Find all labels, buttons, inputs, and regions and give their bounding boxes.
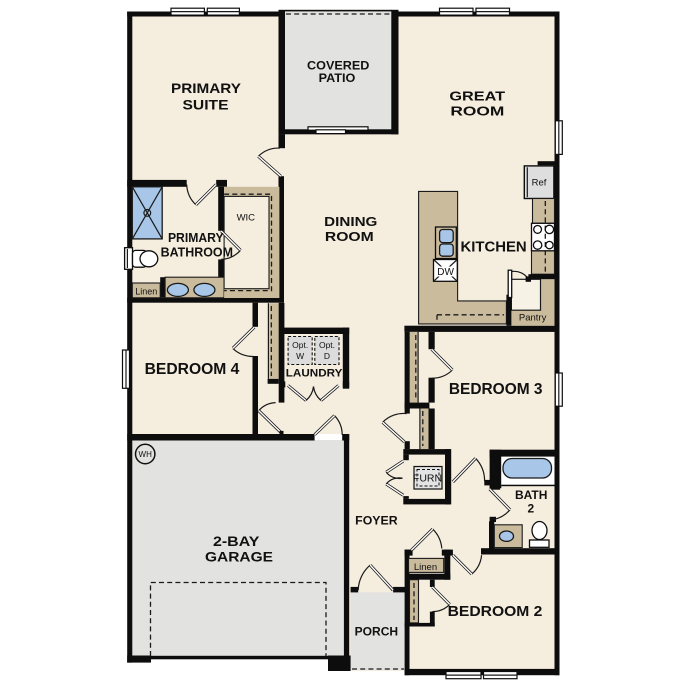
svg-text:WH: WH: [139, 450, 153, 459]
svg-text:LAUNDRY: LAUNDRY: [286, 368, 343, 380]
svg-text:GREAT: GREAT: [449, 88, 505, 103]
svg-text:ROOM: ROOM: [450, 104, 504, 119]
svg-text:2-BAY: 2-BAY: [213, 534, 259, 549]
svg-text:FOYER: FOYER: [355, 513, 398, 527]
svg-text:W: W: [296, 351, 304, 361]
svg-text:PRIMARY: PRIMARY: [168, 230, 224, 245]
svg-text:DW: DW: [437, 267, 454, 278]
svg-text:ROOM: ROOM: [325, 229, 374, 244]
svg-text:Opt.: Opt.: [319, 340, 335, 350]
svg-text:WIC: WIC: [237, 213, 256, 224]
svg-text:DINING: DINING: [324, 214, 377, 229]
svg-text:BEDROOM 2: BEDROOM 2: [448, 603, 543, 620]
svg-text:PORCH: PORCH: [355, 626, 399, 639]
svg-text:PRIMARY: PRIMARY: [171, 80, 242, 96]
svg-text:Linen: Linen: [135, 286, 157, 296]
svg-text:KITCHEN: KITCHEN: [461, 239, 527, 255]
svg-text:SUITE: SUITE: [183, 97, 229, 113]
svg-text:BATHROOM: BATHROOM: [161, 244, 233, 259]
svg-text:Ref: Ref: [532, 178, 547, 189]
svg-text:GARAGE: GARAGE: [205, 550, 273, 565]
svg-text:BEDROOM 4: BEDROOM 4: [145, 361, 240, 378]
svg-text:Linen: Linen: [414, 562, 437, 573]
svg-text:2: 2: [527, 501, 534, 515]
svg-text:BEDROOM 3: BEDROOM 3: [449, 381, 543, 398]
svg-text:D: D: [324, 351, 330, 361]
svg-text:BATH: BATH: [515, 488, 547, 502]
svg-text:PATIO: PATIO: [319, 71, 356, 85]
svg-text:Opt.: Opt.: [292, 340, 308, 350]
svg-text:FURN: FURN: [413, 472, 442, 484]
svg-text:Pantry: Pantry: [519, 312, 547, 323]
